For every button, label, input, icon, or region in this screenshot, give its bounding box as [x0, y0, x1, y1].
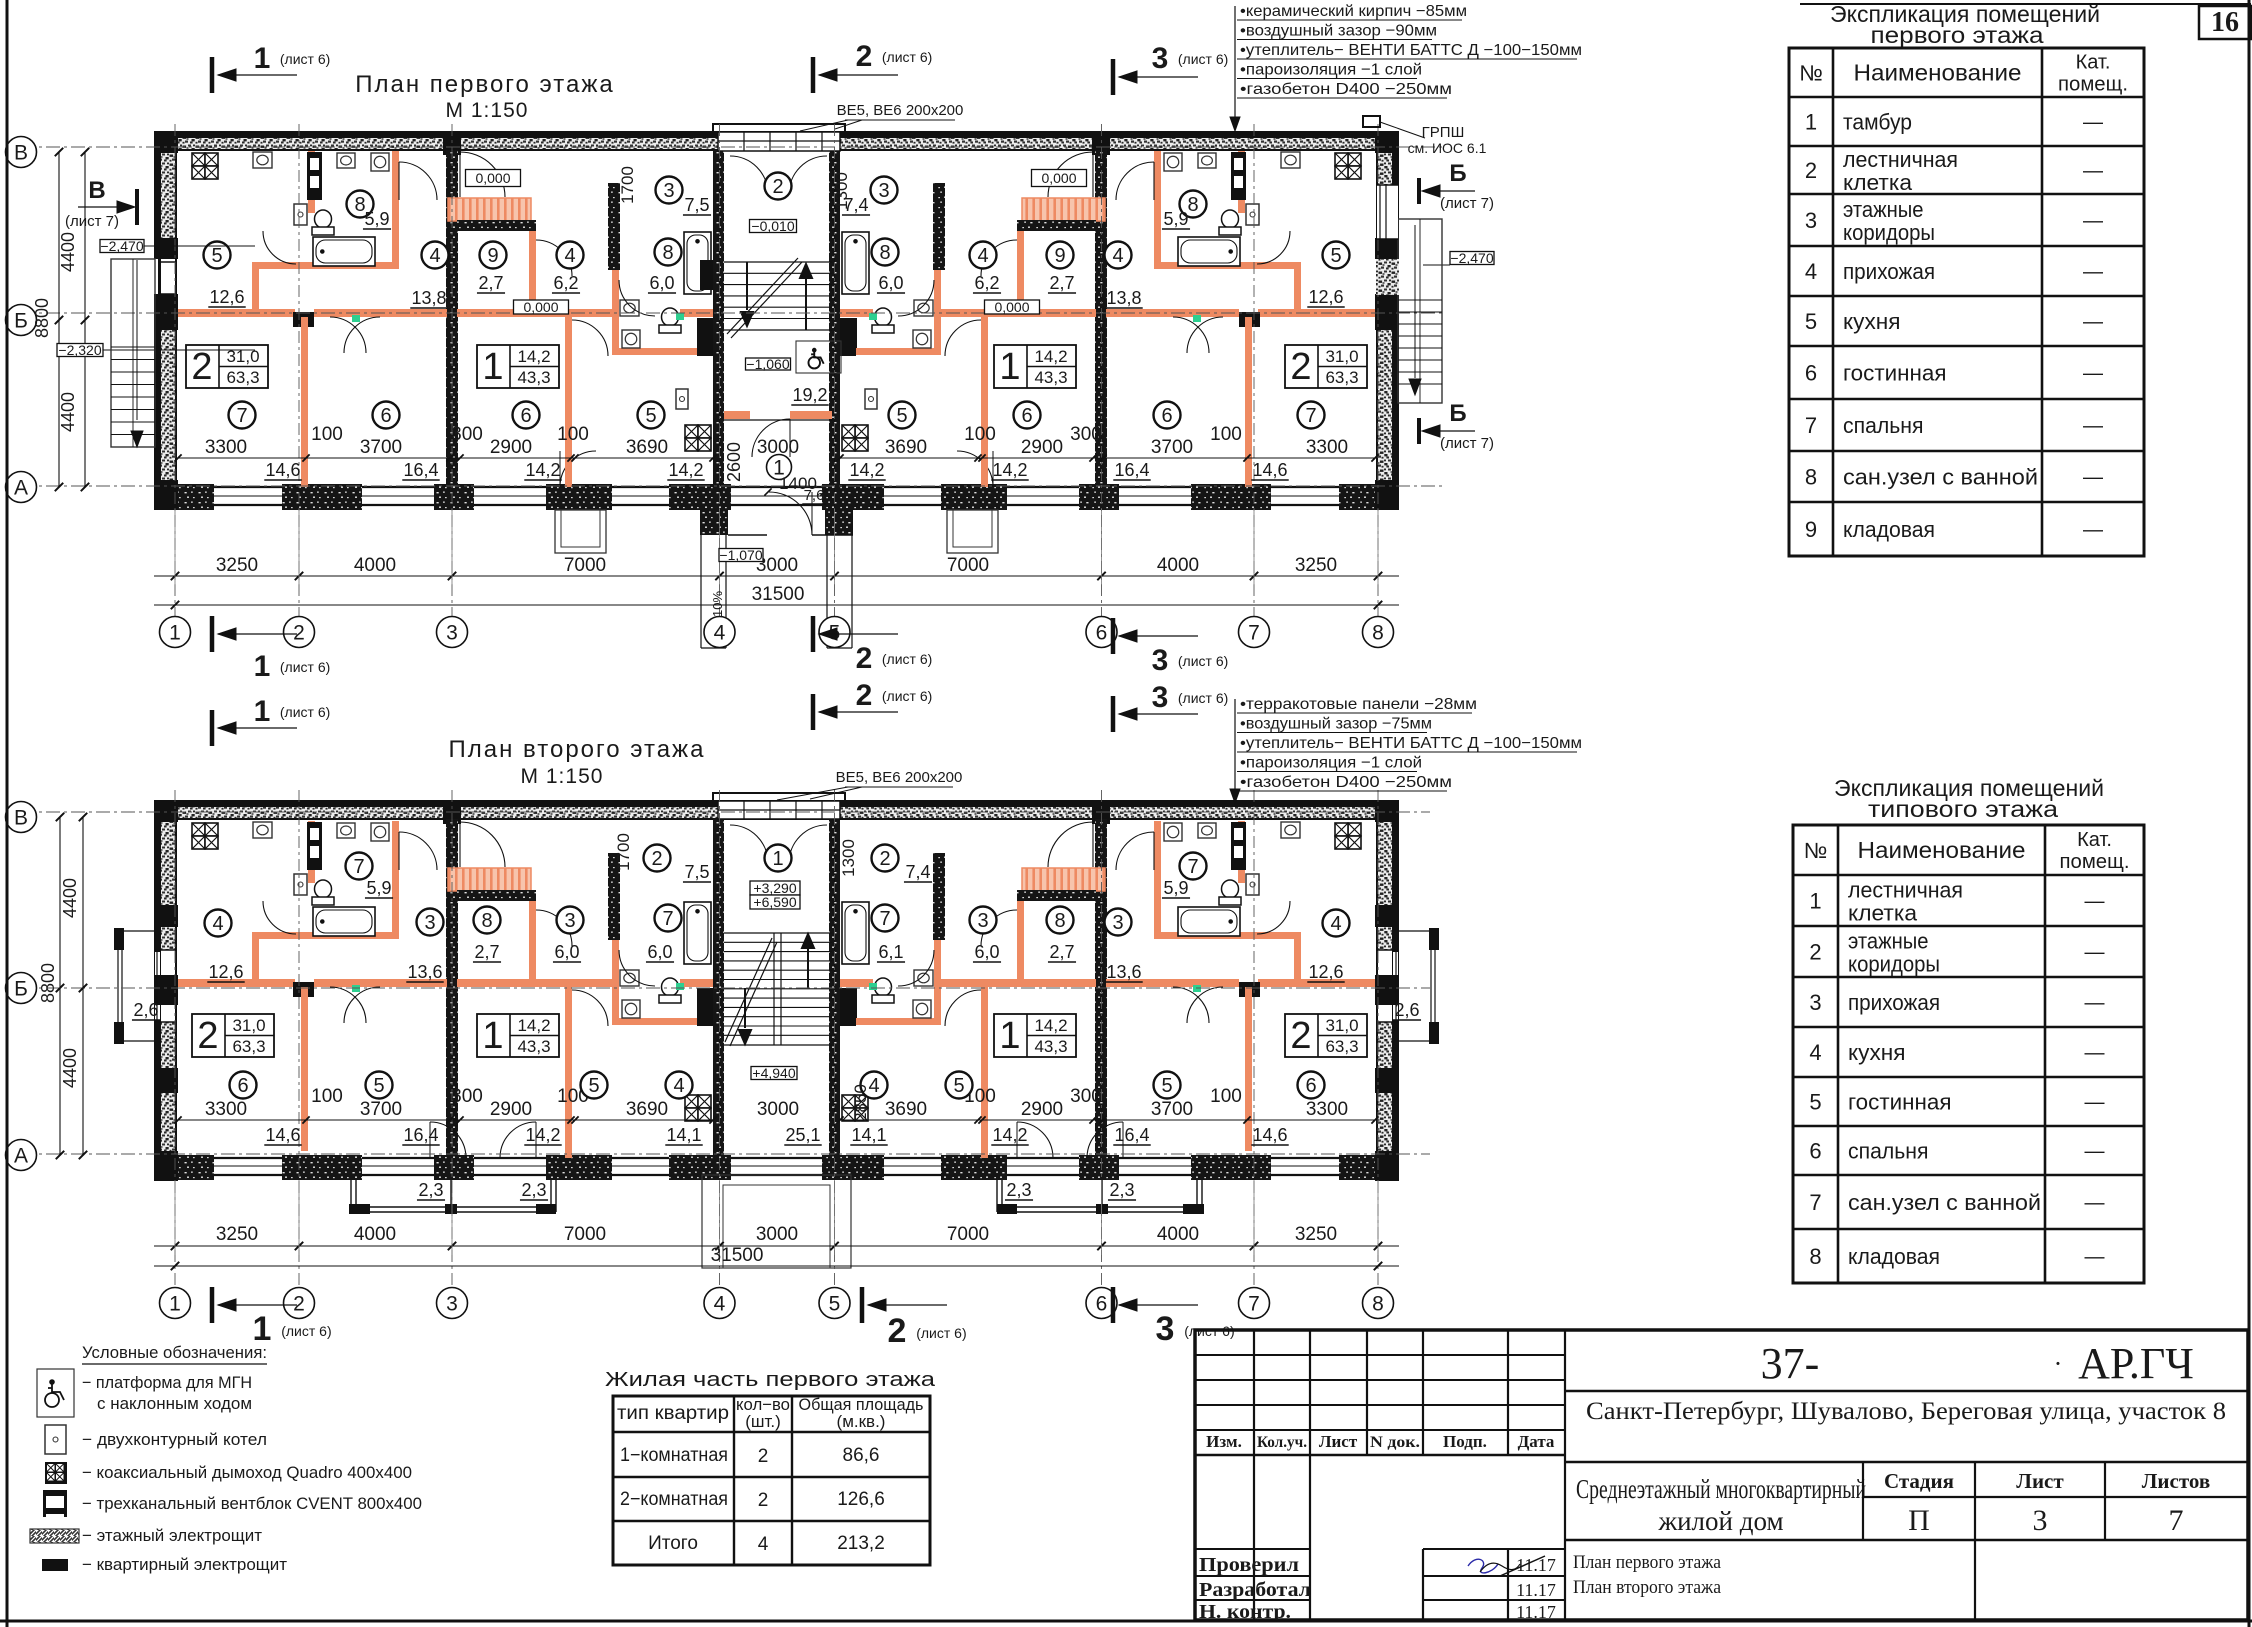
svg-text:3300: 3300	[1306, 1099, 1348, 1120]
svg-text:6: 6	[1096, 1293, 1108, 1316]
svg-text:Листов: Листов	[2142, 1469, 2210, 1493]
svg-text:− квартирный электрощит: − квартирный электрощит	[82, 1555, 287, 1574]
svg-text:В: В	[14, 142, 28, 165]
svg-text:см. ИОС 6.1: см. ИОС 6.1	[1408, 140, 1487, 156]
svg-text:(лист 6): (лист 6)	[280, 704, 330, 720]
svg-text:5: 5	[645, 405, 656, 427]
svg-text:6: 6	[520, 405, 531, 427]
svg-text:сан.узел с ванной: сан.узел с ванной	[1843, 465, 2038, 490]
svg-text:4400: 4400	[58, 232, 78, 272]
svg-text:4: 4	[429, 245, 440, 267]
svg-text:В: В	[88, 177, 105, 204]
svg-text:—: —	[2083, 112, 2103, 134]
svg-text:2,7: 2,7	[1049, 273, 1074, 293]
svg-text:− двухконтурный котел: − двухконтурный котел	[82, 1430, 267, 1449]
svg-text:2: 2	[651, 848, 662, 870]
svg-text:14,1: 14,1	[851, 1125, 886, 1145]
svg-text:3250: 3250	[1295, 1224, 1337, 1245]
svg-text:2,6: 2,6	[133, 1000, 158, 1020]
svg-text:37-: 37-	[1761, 1339, 1820, 1388]
svg-text:1−комнатная: 1−комнатная	[620, 1445, 728, 1466]
svg-text:2,7: 2,7	[474, 942, 499, 962]
svg-text:63,3: 63,3	[1325, 1037, 1358, 1056]
svg-text:16,4: 16,4	[403, 1125, 438, 1145]
svg-text:2: 2	[758, 1490, 769, 1511]
svg-text:− коаксиальный дымоход Quadro: − коаксиальный дымоход Quadro 400х400	[82, 1463, 412, 1482]
svg-text:3: 3	[1809, 990, 1821, 1015]
svg-text:3690: 3690	[885, 437, 927, 458]
svg-text:6: 6	[1096, 622, 1108, 645]
svg-text:4: 4	[1112, 245, 1123, 267]
svg-text:8800: 8800	[32, 298, 52, 338]
svg-text:12,6: 12,6	[1308, 287, 1343, 307]
svg-text:4: 4	[564, 245, 575, 267]
svg-text:7: 7	[2169, 1504, 2184, 1537]
svg-text:− платформа для МГН: − платформа для МГН	[82, 1373, 252, 1392]
svg-text:•газобетон D400 −250мм: •газобетон D400 −250мм	[1240, 774, 1452, 791]
svg-text:3250: 3250	[216, 1224, 258, 1245]
svg-text:ГРПШ: ГРПШ	[1422, 124, 1465, 141]
svg-text:№: №	[1804, 838, 1828, 863]
svg-text:коридоры: коридоры	[1843, 220, 1935, 245]
svg-text:2: 2	[293, 1293, 305, 1316]
svg-text:8: 8	[1372, 622, 1384, 645]
svg-text:3: 3	[1805, 208, 1817, 233]
svg-text:4: 4	[673, 1075, 684, 1097]
svg-text:М 1:150: М 1:150	[446, 99, 529, 122]
svg-text:1: 1	[254, 695, 271, 728]
svg-text:—: —	[2083, 415, 2103, 437]
svg-text:8: 8	[879, 242, 890, 264]
svg-text:—: —	[2085, 1246, 2105, 1268]
svg-text:(лист 6): (лист 6)	[1178, 653, 1228, 669]
svg-text:−2,470: −2,470	[1450, 250, 1493, 266]
svg-text:3: 3	[1156, 1310, 1175, 1348]
svg-text:2: 2	[191, 346, 212, 388]
svg-text:•пароизоляция −1 слой: •пароизоляция −1 слой	[1240, 755, 1422, 772]
svg-text:Стадия: Стадия	[1884, 1469, 1954, 1493]
svg-text:1: 1	[1809, 889, 1821, 914]
svg-text:(лист 6): (лист 6)	[280, 659, 330, 675]
svg-text:6: 6	[1809, 1139, 1821, 1164]
svg-text:−1,060: −1,060	[746, 356, 789, 372]
svg-text:8: 8	[1805, 465, 1817, 490]
svg-text:6: 6	[1805, 361, 1817, 386]
svg-text:300: 300	[1070, 424, 1102, 445]
svg-text:—: —	[2083, 467, 2103, 489]
svg-text:4400: 4400	[58, 392, 78, 432]
svg-text:План второго этажа: План второго этажа	[1573, 1577, 1722, 1598]
svg-text:3: 3	[446, 622, 458, 645]
svg-text:16,4: 16,4	[403, 460, 438, 480]
svg-text:16,4: 16,4	[1114, 460, 1149, 480]
svg-text:1: 1	[169, 1293, 181, 1316]
svg-text:11.17: 11.17	[1516, 1580, 1556, 1600]
svg-text:6: 6	[1161, 405, 1172, 427]
svg-text:тип квартир: тип квартир	[617, 1403, 729, 1424]
svg-text:6,0: 6,0	[878, 273, 903, 293]
svg-text:ВЕ5, ВЕ6 200х200: ВЕ5, ВЕ6 200х200	[837, 102, 964, 119]
svg-text:12,6: 12,6	[208, 962, 243, 982]
svg-text:16: 16	[2211, 7, 2239, 38]
svg-text:5: 5	[211, 245, 222, 267]
svg-text:Условные обозначения:: Условные обозначения:	[82, 1343, 267, 1362]
svg-text:4: 4	[758, 1534, 769, 1555]
svg-text:2−комнатная: 2−комнатная	[620, 1489, 728, 1510]
svg-text:2: 2	[879, 848, 890, 870]
svg-text:0,000: 0,000	[523, 299, 558, 315]
svg-text:3: 3	[977, 910, 988, 932]
svg-text:5,9: 5,9	[366, 878, 391, 898]
svg-text:11.17: 11.17	[1516, 1555, 1556, 1575]
svg-text:0,000: 0,000	[1041, 170, 1076, 186]
svg-text:—: —	[2083, 210, 2103, 232]
svg-text:—: —	[2085, 891, 2105, 913]
svg-text:2900: 2900	[490, 1099, 532, 1120]
svg-text:3000: 3000	[757, 1099, 799, 1120]
svg-text:3: 3	[424, 912, 435, 934]
svg-text:А: А	[14, 1145, 28, 1168]
svg-text:Лист: Лист	[2016, 1469, 2064, 1493]
svg-text:•газобетон D400 −250мм: •газобетон D400 −250мм	[1240, 81, 1452, 98]
svg-text:Лист: Лист	[1319, 1432, 1358, 1451]
svg-text:План второго этажа: План второго этажа	[449, 736, 706, 763]
svg-text:100: 100	[1210, 1086, 1242, 1107]
svg-text:Изм.: Изм.	[1206, 1432, 1242, 1451]
svg-text:−0,010: −0,010	[751, 218, 794, 234]
svg-text:16,4: 16,4	[1114, 1125, 1149, 1145]
svg-text:2: 2	[1809, 940, 1821, 965]
svg-text:3300: 3300	[1306, 437, 1348, 458]
svg-text:7: 7	[1305, 405, 1316, 427]
svg-text:8: 8	[1054, 910, 1065, 932]
svg-text:АР.ГЧ: АР.ГЧ	[2078, 1339, 2194, 1388]
svg-text:(лист 6): (лист 6)	[1178, 690, 1228, 706]
svg-text:спальня: спальня	[1843, 413, 1924, 438]
svg-text:14,2: 14,2	[517, 347, 550, 366]
svg-text:(лист 7): (лист 7)	[65, 213, 119, 230]
svg-text:100: 100	[964, 424, 996, 445]
svg-text:лестничная: лестничная	[1843, 147, 1958, 172]
svg-text:7: 7	[662, 908, 673, 930]
svg-text:4: 4	[714, 1293, 726, 1316]
svg-text:4000: 4000	[1157, 1224, 1199, 1245]
svg-text:4: 4	[714, 622, 726, 645]
svg-text:спальня: спальня	[1848, 1139, 1929, 1164]
svg-text:Наименование: Наименование	[1858, 837, 2026, 863]
svg-text:5,9: 5,9	[1163, 878, 1188, 898]
svg-text:3: 3	[878, 180, 889, 202]
svg-text:2,7: 2,7	[478, 273, 503, 293]
svg-text:кладовая: кладовая	[1848, 1244, 1940, 1269]
svg-text:—: —	[2085, 992, 2105, 1014]
svg-text:2600: 2600	[724, 442, 744, 482]
svg-text:8: 8	[662, 242, 673, 264]
svg-text:7: 7	[1805, 413, 1817, 438]
svg-text:(лист 7): (лист 7)	[1440, 435, 1494, 452]
svg-text:№: №	[1799, 61, 1823, 86]
svg-text:•утеплитель− ВЕНТИ БАТТС Д −10: •утеплитель− ВЕНТИ БАТТС Д −100−150мм	[1240, 42, 1582, 59]
svg-text:6,2: 6,2	[553, 273, 578, 293]
svg-text:13,6: 13,6	[407, 962, 442, 982]
svg-text:1700: 1700	[618, 166, 637, 204]
svg-text:3000: 3000	[756, 1224, 798, 1245]
svg-text:8: 8	[1372, 1293, 1384, 1316]
svg-text:31,0: 31,0	[232, 1016, 265, 1035]
svg-text:кладовая: кладовая	[1843, 517, 1935, 542]
svg-text:− этажный электрощит: − этажный электрощит	[82, 1526, 262, 1545]
svg-text:0,000: 0,000	[994, 299, 1029, 315]
svg-text:2: 2	[1290, 1015, 1311, 1057]
svg-text:(шт.): (шт.)	[745, 1412, 781, 1431]
svg-text:(лист 6): (лист 6)	[882, 688, 932, 704]
svg-text:3300: 3300	[205, 437, 247, 458]
svg-text:14,1: 14,1	[666, 1125, 701, 1145]
svg-text:3690: 3690	[626, 1099, 668, 1120]
svg-text:14,2: 14,2	[1034, 1016, 1067, 1035]
svg-text:(лист 7): (лист 7)	[1440, 195, 1494, 212]
svg-text:1: 1	[999, 346, 1020, 388]
svg-text:100: 100	[311, 424, 343, 445]
svg-text:2,3: 2,3	[1006, 1180, 1031, 1200]
svg-text:7000: 7000	[564, 555, 606, 576]
svg-text:(м.кв.): (м.кв.)	[837, 1412, 886, 1431]
svg-text:—: —	[2085, 1092, 2105, 1114]
svg-text:Среднеэтажный многоквартирный: Среднеэтажный многоквартирный	[1576, 1474, 1866, 1504]
svg-text:4: 4	[1330, 913, 1341, 935]
svg-text:100: 100	[311, 1086, 343, 1107]
svg-text:4: 4	[212, 913, 223, 935]
svg-text:•утеплитель− ВЕНТИ БАТТС Д −10: •утеплитель− ВЕНТИ БАТТС Д −100−150мм	[1240, 735, 1582, 752]
svg-text:31500: 31500	[711, 1245, 764, 1266]
svg-text:9: 9	[1805, 517, 1817, 542]
svg-text:31,0: 31,0	[1325, 1016, 1358, 1035]
svg-text:2: 2	[856, 40, 873, 73]
svg-text:2: 2	[293, 622, 305, 645]
svg-text:4: 4	[977, 245, 988, 267]
svg-text:4400: 4400	[60, 878, 80, 918]
svg-text:Б: Б	[14, 978, 28, 1001]
svg-text:−2,470: −2,470	[100, 238, 143, 254]
svg-text:5: 5	[1805, 309, 1817, 334]
svg-text:гостинная: гостинная	[1843, 361, 1947, 386]
svg-text:31500: 31500	[752, 584, 805, 605]
svg-text:6,0: 6,0	[974, 942, 999, 962]
svg-text:4400: 4400	[60, 1048, 80, 1088]
svg-text:14,2: 14,2	[992, 460, 1027, 480]
svg-text:клетка: клетка	[1848, 901, 1918, 926]
svg-text:4: 4	[868, 1075, 879, 1097]
svg-text:5: 5	[1161, 1075, 1172, 1097]
svg-text:—: —	[2085, 1141, 2105, 1163]
svg-text:помещ.: помещ.	[2058, 74, 2128, 96]
svg-text:—: —	[2083, 160, 2103, 182]
svg-text:7,5: 7,5	[684, 862, 709, 882]
svg-text:сан.узел с ванной: сан.узел с ванной	[1848, 1190, 2041, 1215]
svg-text:(лист 6): (лист 6)	[1178, 51, 1228, 67]
svg-text:жилой дом: жилой дом	[1657, 1506, 1783, 1536]
svg-text:5: 5	[896, 405, 907, 427]
svg-text:—: —	[2085, 942, 2105, 964]
svg-text:13,8: 13,8	[1106, 288, 1141, 308]
svg-text:кухня: кухня	[1848, 1040, 1906, 1065]
svg-text:31,0: 31,0	[1325, 347, 1358, 366]
svg-text:—: —	[2083, 261, 2103, 283]
svg-text:(лист 6): (лист 6)	[280, 51, 330, 67]
svg-text:5: 5	[829, 1293, 841, 1316]
svg-text:14,2: 14,2	[525, 460, 560, 480]
svg-text:—: —	[2085, 1042, 2105, 1064]
svg-text:1300: 1300	[832, 172, 851, 210]
svg-text:7000: 7000	[947, 1224, 989, 1245]
svg-text:2900: 2900	[1021, 1099, 1063, 1120]
svg-text:Дата: Дата	[1518, 1432, 1555, 1451]
svg-text:2: 2	[888, 1312, 907, 1350]
svg-text:3: 3	[564, 910, 575, 932]
svg-text:13,8: 13,8	[411, 288, 446, 308]
svg-text:2,3: 2,3	[418, 1180, 443, 1200]
svg-text:Б: Б	[1449, 160, 1466, 187]
svg-text:2: 2	[772, 176, 783, 198]
svg-text:(лист 6): (лист 6)	[281, 1323, 331, 1339]
svg-text:8800: 8800	[38, 963, 58, 1003]
svg-text:6,0: 6,0	[649, 273, 674, 293]
svg-text:5: 5	[373, 1075, 384, 1097]
svg-text:3690: 3690	[626, 437, 668, 458]
svg-text:6,2: 6,2	[974, 273, 999, 293]
svg-text:4: 4	[1805, 259, 1817, 284]
svg-text:14,2: 14,2	[992, 1125, 1027, 1145]
svg-text:3: 3	[1152, 644, 1169, 677]
svg-text:63,3: 63,3	[232, 1037, 265, 1056]
svg-text:·: ·	[2054, 1349, 2063, 1378]
svg-text:3700: 3700	[360, 437, 402, 458]
svg-text:П: П	[1908, 1504, 1930, 1537]
svg-text:2900: 2900	[490, 437, 532, 458]
svg-text:11.17: 11.17	[1516, 1602, 1556, 1622]
svg-text:6,0: 6,0	[647, 942, 672, 962]
svg-text:•керамический кирпич −85мм: •керамический кирпич −85мм	[1240, 3, 1467, 20]
svg-text:6,1: 6,1	[878, 942, 903, 962]
svg-text:1: 1	[254, 42, 271, 75]
svg-text:Кол.уч.: Кол.уч.	[1257, 1434, 1307, 1451]
svg-text:•пароизоляция −1 слой: •пароизоляция −1 слой	[1240, 62, 1422, 79]
svg-text:3: 3	[2033, 1504, 2048, 1537]
svg-text:1: 1	[169, 622, 181, 645]
svg-text:Б: Б	[1449, 400, 1466, 427]
svg-text:300: 300	[1070, 1086, 1102, 1107]
svg-text:2,7: 2,7	[1049, 942, 1074, 962]
svg-text:2: 2	[856, 679, 873, 712]
svg-text:8: 8	[1809, 1244, 1821, 1269]
svg-text:213,2: 213,2	[837, 1533, 885, 1554]
svg-text:10%: 10%	[710, 591, 725, 617]
svg-text:1: 1	[482, 346, 503, 388]
svg-text:1: 1	[1805, 110, 1817, 135]
svg-text:14,2: 14,2	[849, 460, 884, 480]
svg-text:(лист 6): (лист 6)	[916, 1325, 966, 1341]
svg-text:План первого этажа: План первого этажа	[355, 71, 614, 98]
svg-text:3250: 3250	[216, 555, 258, 576]
svg-text:План первого этажа: План первого этажа	[1573, 1552, 1722, 1573]
svg-text:2850: 2850	[851, 1084, 870, 1122]
svg-text:3: 3	[1112, 912, 1123, 934]
svg-text:14,6: 14,6	[1252, 1125, 1287, 1145]
svg-text:12,6: 12,6	[1308, 962, 1343, 982]
svg-text:Б: Б	[14, 310, 28, 333]
svg-text:7000: 7000	[947, 555, 989, 576]
svg-text:8: 8	[481, 910, 492, 932]
svg-text:—: —	[2085, 1192, 2105, 1214]
svg-text:прихожая: прихожая	[1843, 259, 1935, 284]
svg-text:Санкт-Петербург, Шувалово, Бер: Санкт-Петербург, Шувалово, Береговая ули…	[1586, 1398, 2226, 1425]
svg-text:Разработал: Разработал	[1199, 1579, 1311, 1601]
svg-text:7,6: 7,6	[804, 487, 825, 504]
svg-text:3700: 3700	[1151, 437, 1193, 458]
svg-text:5: 5	[1330, 245, 1341, 267]
svg-text:4: 4	[1809, 1040, 1821, 1065]
svg-text:1: 1	[999, 1015, 1020, 1057]
svg-text:300: 300	[451, 1086, 483, 1107]
svg-text:4000: 4000	[354, 555, 396, 576]
svg-text:3700: 3700	[360, 1099, 402, 1120]
svg-text:7000: 7000	[564, 1224, 606, 1245]
svg-text:Подп.: Подп.	[1443, 1432, 1487, 1451]
svg-text:2: 2	[758, 1446, 769, 1467]
svg-text:14,2: 14,2	[525, 1125, 560, 1145]
svg-text:−1,070: −1,070	[719, 547, 762, 563]
svg-text:2: 2	[1805, 158, 1817, 183]
svg-text:7: 7	[353, 856, 364, 878]
svg-text:3: 3	[446, 1293, 458, 1316]
svg-text:− трехканальный вентблок CVENT: − трехканальный вентблок CVENT 800х400	[82, 1494, 422, 1513]
svg-text:13,6: 13,6	[1106, 962, 1141, 982]
svg-text:0,000: 0,000	[475, 170, 510, 186]
svg-text:3690: 3690	[885, 1099, 927, 1120]
svg-text:+4,940: +4,940	[752, 1065, 795, 1081]
svg-text:1: 1	[482, 1015, 503, 1057]
svg-text:7: 7	[1248, 622, 1260, 645]
svg-text:12,6: 12,6	[209, 287, 244, 307]
svg-text:Итого: Итого	[648, 1533, 698, 1554]
svg-text:100: 100	[557, 424, 589, 445]
svg-text:7: 7	[1248, 1293, 1260, 1316]
svg-text:тамбур: тамбур	[1843, 110, 1912, 135]
svg-text:43,3: 43,3	[1034, 1037, 1067, 1056]
svg-text:5,9: 5,9	[1163, 209, 1188, 229]
svg-text:5: 5	[588, 1075, 599, 1097]
svg-text:•воздушный зазор −75мм: •воздушный зазор −75мм	[1240, 716, 1432, 733]
svg-text:3700: 3700	[1151, 1099, 1193, 1120]
svg-text:Проверил: Проверил	[1199, 1554, 1299, 1576]
svg-text:гостинная: гостинная	[1848, 1090, 1952, 1115]
svg-text:126,6: 126,6	[837, 1489, 885, 1510]
svg-text:(лист 6): (лист 6)	[882, 49, 932, 65]
svg-text:2: 2	[197, 1015, 218, 1057]
svg-text:7: 7	[1809, 1190, 1821, 1215]
svg-text:—: —	[2083, 311, 2103, 333]
svg-text:Кат.: Кат.	[2077, 829, 2112, 851]
svg-text:43,3: 43,3	[517, 368, 550, 387]
svg-text:7,4: 7,4	[905, 862, 930, 882]
svg-text:7,5: 7,5	[684, 195, 709, 215]
svg-text:1: 1	[254, 650, 271, 683]
svg-text:19,2: 19,2	[792, 385, 827, 405]
svg-text:Наименование: Наименование	[1854, 60, 2022, 86]
svg-text:6: 6	[380, 405, 391, 427]
svg-text:(лист 6): (лист 6)	[882, 651, 932, 667]
svg-text:2,3: 2,3	[521, 1180, 546, 1200]
